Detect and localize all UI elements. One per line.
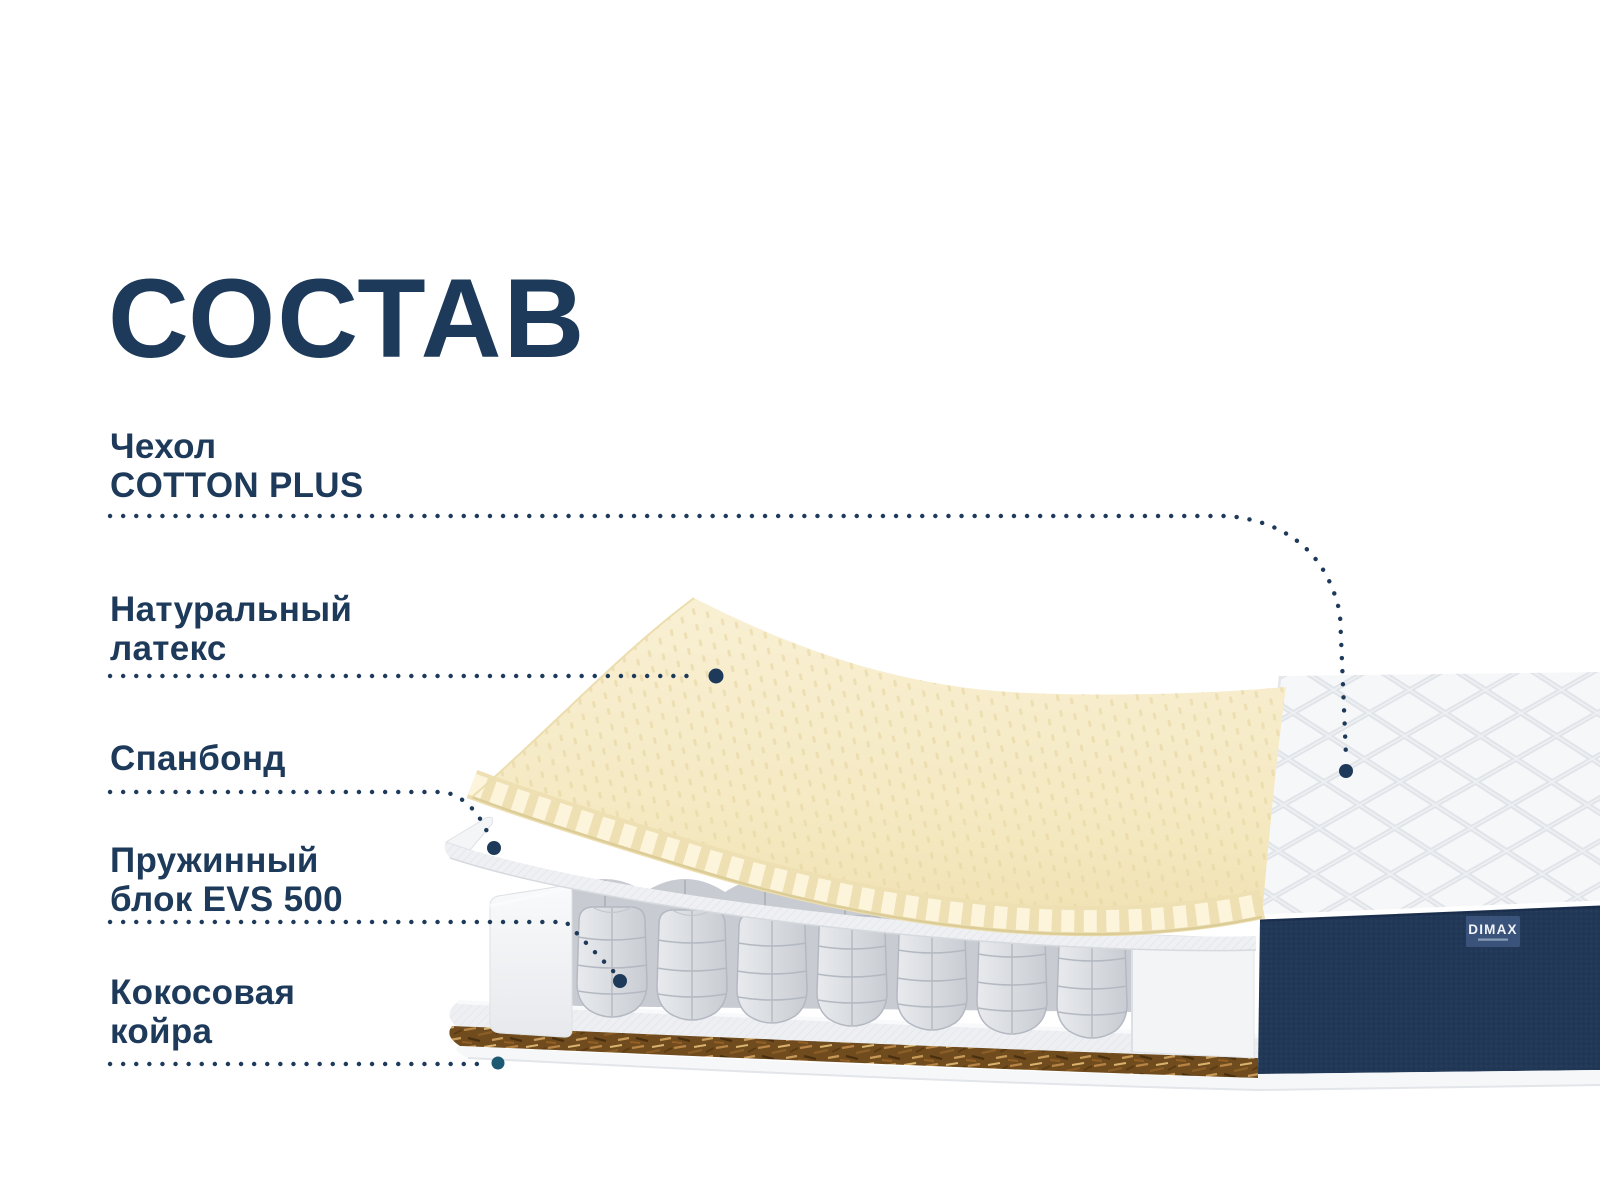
label-cover: Чехол COTTON PLUS <box>110 427 364 505</box>
label-spunbond: Спанбонд <box>110 739 286 778</box>
side-fabric-panel: DIMAX <box>1258 903 1600 1074</box>
dot-coir <box>492 1057 505 1070</box>
dot-springs <box>613 974 627 988</box>
dimax-logo-patch: DIMAX <box>1466 916 1520 947</box>
dot-latex <box>709 669 724 684</box>
left-foam-rail <box>490 886 572 1037</box>
label-coir-line1: Кокосовая <box>110 973 295 1012</box>
spring-pocket <box>737 913 807 1023</box>
spring-pocket <box>657 910 727 1020</box>
label-latex-line2: латекс <box>110 629 352 668</box>
label-coir: Кокосовая койра <box>110 973 295 1051</box>
spring-pocket <box>577 907 647 1017</box>
label-coir-line2: койра <box>110 1012 295 1051</box>
quilted-cover-top <box>1260 672 1600 917</box>
label-spunbond-line1: Спанбонд <box>110 739 286 778</box>
label-cover-line2: COTTON PLUS <box>110 466 364 505</box>
leader-spunbond <box>110 792 488 834</box>
page-title: СОСТАВ <box>108 263 586 375</box>
brand-tagline-bar <box>1478 939 1508 941</box>
label-latex: Натуральный латекс <box>110 590 352 668</box>
mattress-composition-infographic: DIMAX <box>0 0 1600 1201</box>
right-foam-rail <box>1132 934 1254 1058</box>
label-latex-line1: Натуральный <box>110 590 352 629</box>
brand-logo-text: DIMAX <box>1468 922 1518 937</box>
label-springs: Пружинный блок EVS 500 <box>110 841 343 919</box>
label-cover-line1: Чехол <box>110 427 364 466</box>
label-springs-line2: блок EVS 500 <box>110 880 343 919</box>
label-springs-line1: Пружинный <box>110 841 343 880</box>
dot-cover <box>1339 764 1353 778</box>
dot-spunbond <box>487 841 501 855</box>
